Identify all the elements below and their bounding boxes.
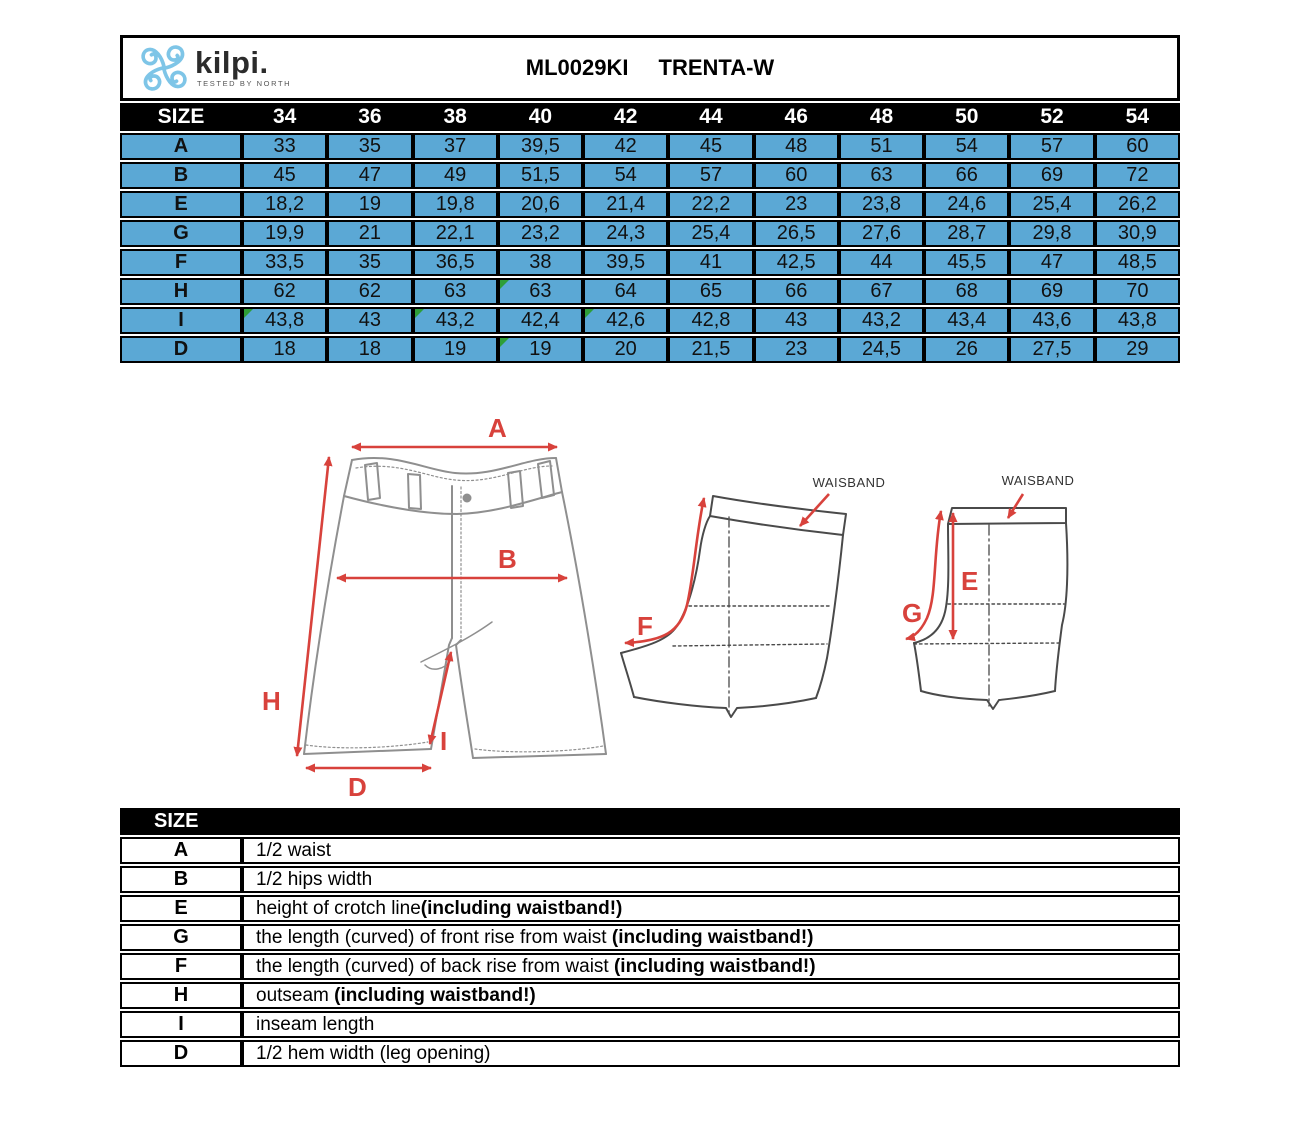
measure-label-E: E (961, 566, 978, 596)
size-table-row: A33353739,542454851545760 (120, 133, 1180, 160)
size-table-row: B45474951,554576063666972 (120, 162, 1180, 189)
size-column-header: 48 (839, 103, 924, 131)
size-table: SIZE 3436384042444648505254 A33353739,54… (120, 101, 1180, 365)
size-value: 27,6 (862, 222, 901, 244)
size-value: 45,5 (947, 251, 986, 273)
size-header-row: SIZE 3436384042444648505254 (120, 103, 1180, 131)
size-column-header: 36 (327, 103, 412, 131)
size-value-cell: 43,4 (924, 307, 1009, 334)
size-value: 33 (274, 135, 296, 157)
size-value: 33,5 (265, 251, 304, 273)
row-label: A (120, 133, 242, 160)
back-panel-drawing: F WAISBAND (621, 475, 885, 717)
size-value-cell: 60 (1095, 133, 1180, 160)
size-value: 38 (529, 251, 551, 273)
size-value-cell: 24,6 (924, 191, 1009, 218)
legend-text: the length (curved) of back rise from wa… (256, 956, 614, 977)
size-value: 67 (870, 280, 892, 302)
legend-description: the length (curved) of front rise from w… (242, 924, 1180, 951)
top-block: kilpi. TESTED BY NORTH ML0029KITRENTA-W … (120, 35, 1180, 365)
size-value: 19,8 (436, 193, 475, 215)
size-value-cell: 39,5 (498, 133, 583, 160)
size-value-cell: 62 (242, 278, 327, 305)
legend-text: 1/2 waist (256, 840, 331, 861)
size-value-cell: 33 (242, 133, 327, 160)
measure-A-arrow: A (352, 413, 557, 447)
size-value-cell: 26 (924, 336, 1009, 363)
size-value-cell: 62 (327, 278, 412, 305)
size-value: 19 (529, 338, 551, 360)
size-value: 43 (359, 309, 381, 331)
size-value-cell: 43,2 (413, 307, 498, 334)
size-value: 24,5 (862, 338, 901, 360)
size-value-cell: 23 (754, 336, 839, 363)
measure-label-A: A (488, 413, 507, 443)
size-value-cell: 19 (413, 336, 498, 363)
size-value-cell: 18 (242, 336, 327, 363)
size-value-cell: 18 (327, 336, 412, 363)
size-value: 65 (700, 280, 722, 302)
legend-text: the length (curved) of front rise from w… (256, 927, 612, 948)
size-value: 22,1 (436, 222, 475, 244)
legend-text-bold: (including waistband!) (421, 898, 623, 919)
size-column-header: 52 (1009, 103, 1094, 131)
size-value: 26,2 (1118, 193, 1157, 215)
size-value-cell: 45 (242, 162, 327, 189)
size-value: 21 (359, 222, 381, 244)
size-value: 64 (615, 280, 637, 302)
size-value: 39,5 (606, 251, 645, 273)
size-value-cell: 23 (754, 191, 839, 218)
waistband-label: WAISBAND (1002, 473, 1075, 488)
size-value: 69 (1041, 280, 1063, 302)
size-value-cell: 19,9 (242, 220, 327, 247)
size-value-cell: 49 (413, 162, 498, 189)
legend-description: 1/2 hem width (leg opening) (242, 1040, 1180, 1067)
legend-text-bold: (including waistband!) (612, 927, 814, 948)
legend-row-label: I (120, 1011, 242, 1038)
size-value: 35 (359, 251, 381, 273)
size-value-cell: 51,5 (498, 162, 583, 189)
product-code: ML0029KI (526, 55, 629, 80)
size-value: 30,9 (1118, 222, 1157, 244)
size-value: 43,4 (947, 309, 986, 331)
comment-marker-icon (500, 280, 509, 289)
size-value: 18 (359, 338, 381, 360)
brand-header: kilpi. TESTED BY NORTH ML0029KITRENTA-W (120, 35, 1180, 101)
size-value-cell: 18,2 (242, 191, 327, 218)
legend-block: SIZE A1/2 waistB1/2 hips widthEheight of… (120, 806, 1180, 1069)
size-column-header: 38 (413, 103, 498, 131)
size-value: 20 (615, 338, 637, 360)
size-value-cell: 67 (839, 278, 924, 305)
legend-row-label: H (120, 982, 242, 1009)
size-value: 36,5 (436, 251, 475, 273)
size-value-cell: 20,6 (498, 191, 583, 218)
legend-text: outseam (256, 985, 334, 1006)
legend-description: inseam length (242, 1011, 1180, 1038)
size-value: 37 (444, 135, 466, 157)
measure-label-B: B (498, 544, 517, 574)
legend-row: D1/2 hem width (leg opening) (120, 1040, 1180, 1067)
size-value: 43,2 (862, 309, 901, 331)
size-value: 43,8 (265, 309, 304, 331)
size-value-cell: 35 (327, 249, 412, 276)
row-label: E (120, 191, 242, 218)
size-value-cell: 20 (583, 336, 668, 363)
size-value: 48,5 (1118, 251, 1157, 273)
size-value: 19,9 (265, 222, 304, 244)
size-table-row: H6262636364656667686970 (120, 278, 1180, 305)
size-value-cell: 57 (668, 162, 753, 189)
legend-row: Eheight of crotch line(including waistba… (120, 895, 1180, 922)
measure-label-G: G (902, 598, 922, 628)
size-column-header: 54 (1095, 103, 1180, 131)
size-value-cell: 37 (413, 133, 498, 160)
size-value-cell: 26,2 (1095, 191, 1180, 218)
size-corner-header: SIZE (120, 103, 242, 131)
size-value: 66 (956, 164, 978, 186)
page-title: ML0029KITRENTA-W (123, 55, 1177, 81)
size-value: 18,2 (265, 193, 304, 215)
legend-description: height of crotch line(including waistban… (242, 895, 1180, 922)
size-value-cell: 72 (1095, 162, 1180, 189)
size-value: 47 (1041, 251, 1063, 273)
measure-D-arrow: D (306, 768, 431, 802)
size-column-header: 40 (498, 103, 583, 131)
size-value: 43,2 (436, 309, 475, 331)
size-value: 66 (785, 280, 807, 302)
size-value-cell: 19,8 (413, 191, 498, 218)
size-value: 63 (870, 164, 892, 186)
legend-row-label: E (120, 895, 242, 922)
size-value-cell: 25,4 (668, 220, 753, 247)
legend-row: B1/2 hips width (120, 866, 1180, 893)
waistband-callout-front: WAISBAND (1002, 473, 1075, 518)
size-column-header: 42 (583, 103, 668, 131)
size-value-cell: 70 (1095, 278, 1180, 305)
size-value-cell: 43 (754, 307, 839, 334)
size-value-cell: 69 (1009, 278, 1094, 305)
size-value: 29 (1126, 338, 1148, 360)
measure-label-H: H (262, 686, 281, 716)
size-value-cell: 48 (754, 133, 839, 160)
row-label: G (120, 220, 242, 247)
size-value-cell: 44 (839, 249, 924, 276)
size-value: 49 (444, 164, 466, 186)
size-value-cell: 24,5 (839, 336, 924, 363)
size-value-cell: 27,5 (1009, 336, 1094, 363)
size-value: 48 (785, 135, 807, 157)
size-value-cell: 23,8 (839, 191, 924, 218)
legend-row: Gthe length (curved) of front rise from … (120, 924, 1180, 951)
size-value: 47 (359, 164, 381, 186)
size-value-cell: 57 (1009, 133, 1094, 160)
legend-text: 1/2 hips width (256, 869, 372, 890)
size-value: 42,4 (521, 309, 560, 331)
size-value: 43 (785, 309, 807, 331)
size-value-cell: 39,5 (583, 249, 668, 276)
size-value-cell: 51 (839, 133, 924, 160)
size-value: 28,7 (947, 222, 986, 244)
measure-F-arrow: F (625, 498, 704, 643)
size-value-cell: 21,5 (668, 336, 753, 363)
legend-header-row: SIZE (120, 808, 1180, 835)
size-table-row: I43,84343,242,442,642,84343,243,443,643,… (120, 307, 1180, 334)
product-name: TRENTA-W (659, 55, 775, 80)
legend-description: outseam (including waistband!) (242, 982, 1180, 1009)
size-value-cell: 43,8 (242, 307, 327, 334)
size-value: 19 (359, 193, 381, 215)
legend-description: the length (curved) of back rise from wa… (242, 953, 1180, 980)
size-value: 57 (700, 164, 722, 186)
size-column-header: 44 (668, 103, 753, 131)
size-value: 63 (529, 280, 551, 302)
size-value-cell: 21 (327, 220, 412, 247)
size-value-cell: 43 (327, 307, 412, 334)
size-value-cell: 33,5 (242, 249, 327, 276)
comment-marker-icon (415, 309, 424, 318)
legend-text-bold: (including waistband!) (334, 985, 536, 1006)
size-value-cell: 66 (754, 278, 839, 305)
measurement-diagram: A B H D I (0, 410, 1300, 810)
size-value-cell: 64 (583, 278, 668, 305)
size-value: 51 (870, 135, 892, 157)
legend-row-label: D (120, 1040, 242, 1067)
size-value: 29,8 (1033, 222, 1072, 244)
size-value: 25,4 (1033, 193, 1072, 215)
size-value-cell: 24,3 (583, 220, 668, 247)
size-value: 43,8 (1118, 309, 1157, 331)
size-value-cell: 35 (327, 133, 412, 160)
waistband-label: WAISBAND (813, 475, 886, 490)
size-value: 57 (1041, 135, 1063, 157)
size-column-header: 46 (754, 103, 839, 131)
size-value-cell: 47 (327, 162, 412, 189)
comment-marker-icon (500, 338, 509, 347)
size-value-cell: 36,5 (413, 249, 498, 276)
size-value-cell: 45,5 (924, 249, 1009, 276)
size-table-row: E18,21919,820,621,422,22323,824,625,426,… (120, 191, 1180, 218)
size-value-cell: 66 (924, 162, 1009, 189)
size-value-cell: 63 (839, 162, 924, 189)
size-value: 39,5 (521, 135, 560, 157)
measure-G-arrow: G (902, 511, 941, 639)
size-value-cell: 22,2 (668, 191, 753, 218)
measure-H-arrow: H (262, 457, 329, 756)
row-label: F (120, 249, 242, 276)
size-value-cell: 41 (668, 249, 753, 276)
size-value: 24,6 (947, 193, 986, 215)
legend-text: 1/2 hem width (leg opening) (256, 1043, 490, 1064)
size-value: 42 (615, 135, 637, 157)
size-value-cell: 43,2 (839, 307, 924, 334)
legend-row: A1/2 waist (120, 837, 1180, 864)
comment-marker-icon (585, 309, 594, 318)
size-value-cell: 42,8 (668, 307, 753, 334)
size-table-row: G19,92122,123,224,325,426,527,628,729,83… (120, 220, 1180, 247)
size-value: 26,5 (777, 222, 816, 244)
size-value-cell: 45 (668, 133, 753, 160)
size-value: 35 (359, 135, 381, 157)
size-value: 22,2 (691, 193, 730, 215)
size-value: 42,6 (606, 309, 645, 331)
legend-header: SIZE (120, 808, 1180, 835)
size-value: 51,5 (521, 164, 560, 186)
comment-marker-icon (244, 309, 253, 318)
legend-row: Iinseam length (120, 1011, 1180, 1038)
measure-E-arrow: E (953, 513, 978, 639)
size-value-cell: 29,8 (1009, 220, 1094, 247)
size-table-row: D181819192021,52324,52627,529 (120, 336, 1180, 363)
size-value-cell: 21,4 (583, 191, 668, 218)
size-value-cell: 47 (1009, 249, 1094, 276)
size-value-cell: 42,5 (754, 249, 839, 276)
size-value: 19 (444, 338, 466, 360)
measure-label-F: F (637, 611, 653, 641)
size-value: 23 (785, 193, 807, 215)
size-value-cell: 60 (754, 162, 839, 189)
size-column-header: 50 (924, 103, 1009, 131)
size-value-cell: 54 (583, 162, 668, 189)
size-value-cell: 42 (583, 133, 668, 160)
legend-row-label: B (120, 866, 242, 893)
size-value: 62 (359, 280, 381, 302)
legend-text: height of crotch line (256, 898, 421, 919)
size-value: 21,5 (691, 338, 730, 360)
measure-label-I: I (440, 726, 447, 756)
size-value: 25,4 (691, 222, 730, 244)
size-value-cell: 42,6 (583, 307, 668, 334)
size-value: 45 (274, 164, 296, 186)
size-value: 21,4 (606, 193, 645, 215)
size-value-cell: 54 (924, 133, 1009, 160)
size-value: 43,6 (1033, 309, 1072, 331)
size-value-cell: 27,6 (839, 220, 924, 247)
size-value-cell: 42,4 (498, 307, 583, 334)
size-value: 72 (1126, 164, 1148, 186)
size-value-cell: 43,8 (1095, 307, 1180, 334)
size-value-cell: 26,5 (754, 220, 839, 247)
size-value: 45 (700, 135, 722, 157)
size-value: 69 (1041, 164, 1063, 186)
size-value-cell: 28,7 (924, 220, 1009, 247)
size-value: 54 (615, 164, 637, 186)
waistband-callout-back: WAISBAND (800, 475, 885, 526)
size-value: 27,5 (1033, 338, 1072, 360)
size-value-cell: 65 (668, 278, 753, 305)
size-value: 54 (956, 135, 978, 157)
legend-table: SIZE A1/2 waistB1/2 hips widthEheight of… (120, 806, 1180, 1069)
size-value: 24,3 (606, 222, 645, 244)
size-value: 44 (870, 251, 892, 273)
shorts-front-view-drawing: A B H D I (262, 413, 606, 802)
size-value-cell: 69 (1009, 162, 1094, 189)
size-column-header: 34 (242, 103, 327, 131)
size-value-cell: 63 (413, 278, 498, 305)
size-value-cell: 25,4 (1009, 191, 1094, 218)
size-value: 42,8 (691, 309, 730, 331)
size-value: 63 (444, 280, 466, 302)
size-value-cell: 48,5 (1095, 249, 1180, 276)
row-label: B (120, 162, 242, 189)
size-value: 70 (1126, 280, 1148, 302)
row-label: I (120, 307, 242, 334)
legend-row-label: A (120, 837, 242, 864)
size-chart-sheet: kilpi. TESTED BY NORTH ML0029KITRENTA-W … (0, 0, 1300, 1126)
size-value: 60 (1126, 135, 1148, 157)
legend-description: 1/2 waist (242, 837, 1180, 864)
size-value-cell: 68 (924, 278, 1009, 305)
size-value: 23 (785, 338, 807, 360)
size-value-cell: 30,9 (1095, 220, 1180, 247)
size-value: 20,6 (521, 193, 560, 215)
legend-row-label: F (120, 953, 242, 980)
row-label: D (120, 336, 242, 363)
legend-row: Houtseam (including waistband!) (120, 982, 1180, 1009)
size-value-cell: 29 (1095, 336, 1180, 363)
legend-description: 1/2 hips width (242, 866, 1180, 893)
size-value: 26 (956, 338, 978, 360)
size-value: 68 (956, 280, 978, 302)
size-value: 41 (700, 251, 722, 273)
legend-row: Fthe length (curved) of back rise from w… (120, 953, 1180, 980)
row-label: H (120, 278, 242, 305)
legend-text-bold: (including waistband!) (614, 956, 816, 977)
size-value: 60 (785, 164, 807, 186)
size-value-cell: 22,1 (413, 220, 498, 247)
size-table-row: F33,53536,53839,54142,54445,54748,5 (120, 249, 1180, 276)
size-value-cell: 63 (498, 278, 583, 305)
size-value-cell: 19 (327, 191, 412, 218)
size-value-cell: 43,6 (1009, 307, 1094, 334)
size-value: 23,2 (521, 222, 560, 244)
size-value: 42,5 (777, 251, 816, 273)
size-value: 18 (274, 338, 296, 360)
size-value-cell: 38 (498, 249, 583, 276)
size-value: 62 (274, 280, 296, 302)
size-value-cell: 19 (498, 336, 583, 363)
front-panel-drawing: E G WAISBAND (902, 473, 1074, 709)
legend-row-label: G (120, 924, 242, 951)
size-value-cell: 23,2 (498, 220, 583, 247)
legend-text: inseam length (256, 1014, 374, 1035)
size-value: 23,8 (862, 193, 901, 215)
measure-label-D: D (348, 772, 367, 802)
